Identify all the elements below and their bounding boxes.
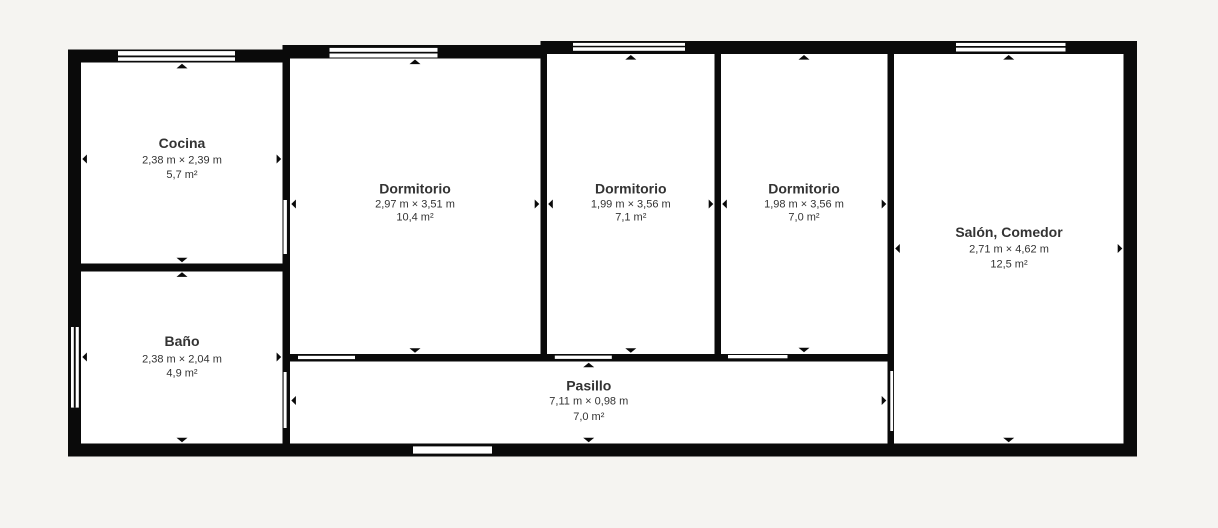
svg-text:Dormitorio: Dormitorio: [379, 181, 451, 197]
svg-text:Pasillo: Pasillo: [566, 378, 611, 394]
svg-text:2,97 m × 3,51 m: 2,97 m × 3,51 m: [375, 199, 455, 211]
svg-text:1,99 m × 3,56 m: 1,99 m × 3,56 m: [591, 199, 671, 211]
svg-text:2,71 m × 4,62 m: 2,71 m × 4,62 m: [969, 244, 1049, 256]
svg-text:12,5 m²: 12,5 m²: [990, 259, 1028, 271]
svg-text:Salón, Comedor: Salón, Comedor: [955, 224, 1063, 240]
svg-text:Dormitorio: Dormitorio: [768, 181, 840, 197]
svg-text:Cocina: Cocina: [159, 135, 206, 151]
svg-text:7,0 m²: 7,0 m²: [573, 411, 605, 423]
svg-text:1,98 m × 3,56 m: 1,98 m × 3,56 m: [764, 199, 844, 211]
svg-text:4,9 m²: 4,9 m²: [166, 368, 198, 380]
svg-text:7,11 m × 0,98 m: 7,11 m × 0,98 m: [549, 396, 628, 408]
svg-text:10,4 m²: 10,4 m²: [396, 212, 434, 224]
svg-text:7,0 m²: 7,0 m²: [788, 212, 820, 224]
svg-text:Dormitorio: Dormitorio: [595, 181, 667, 197]
svg-text:5,7 m²: 5,7 m²: [166, 169, 198, 181]
svg-text:7,1 m²: 7,1 m²: [615, 212, 647, 224]
svg-text:2,38 m × 2,39 m: 2,38 m × 2,39 m: [142, 155, 222, 167]
svg-text:2,38 m × 2,04 m: 2,38 m × 2,04 m: [142, 354, 222, 366]
svg-text:Baño: Baño: [165, 333, 200, 349]
